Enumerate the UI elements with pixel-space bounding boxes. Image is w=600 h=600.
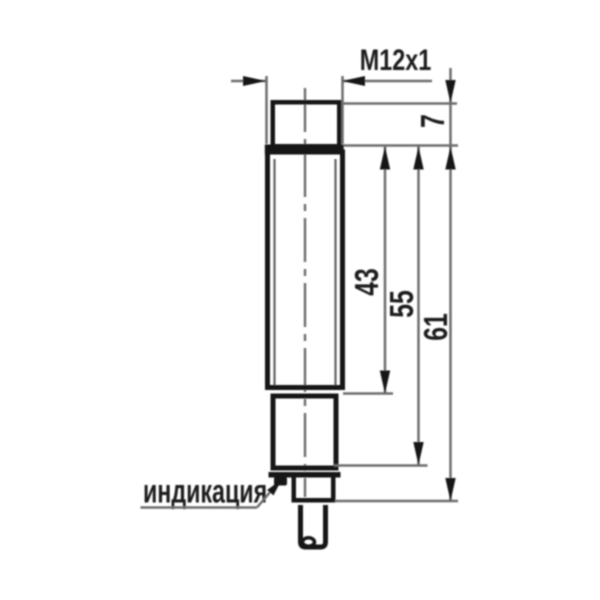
- svg-text:7: 7: [416, 114, 452, 128]
- svg-text:55: 55: [385, 290, 421, 318]
- svg-text:43: 43: [350, 268, 386, 296]
- svg-text:M12x1: M12x1: [360, 43, 432, 76]
- svg-text:индикация: индикация: [143, 474, 267, 511]
- svg-text:61: 61: [419, 313, 455, 341]
